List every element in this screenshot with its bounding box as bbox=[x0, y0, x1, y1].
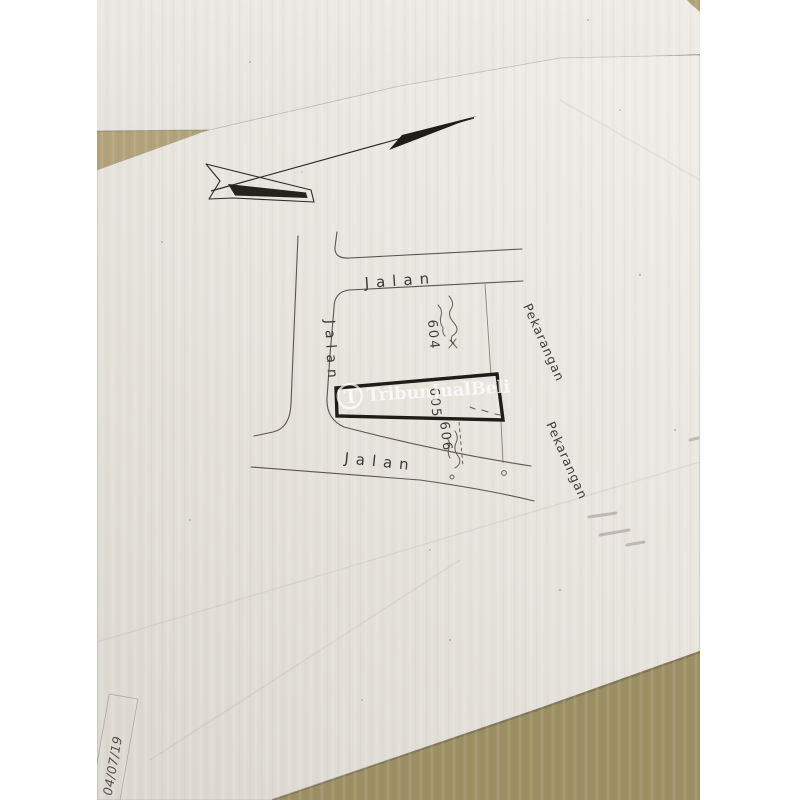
road-label-jalan-left: Jalan bbox=[321, 318, 340, 384]
photo-area: Jalan Jalan Jalan 604 605 606 Pekarangan… bbox=[91, 0, 700, 800]
watermark-logo-initial: T bbox=[343, 386, 358, 409]
plot-number-604: 604 bbox=[424, 319, 442, 351]
photo-of-land-sketch: Jalan Jalan Jalan 604 605 606 Pekarangan… bbox=[0, 0, 800, 800]
scene-canvas: Jalan Jalan Jalan 604 605 606 Pekarangan… bbox=[0, 0, 800, 800]
